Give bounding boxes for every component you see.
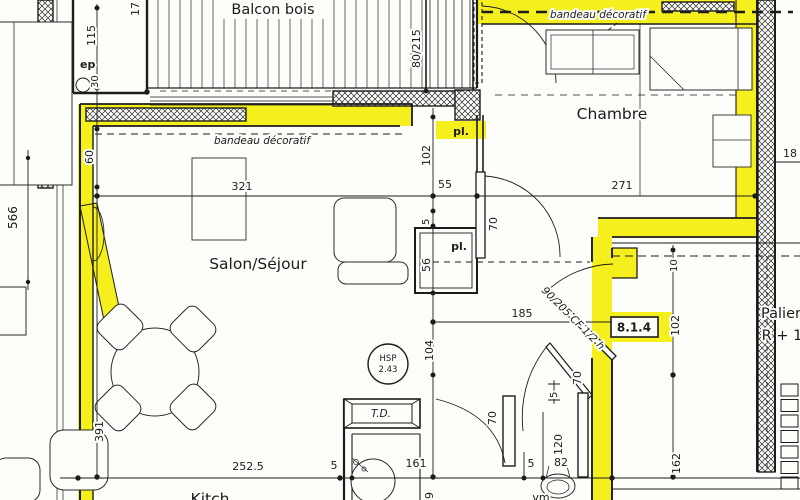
- dim-70-bath-door: 70: [486, 411, 499, 425]
- nightstand: [713, 115, 751, 167]
- dim-70-wc-door: 70: [571, 371, 584, 385]
- dim-18-partial: 18: [783, 147, 797, 160]
- north-wall-hatch: [86, 108, 246, 121]
- dim-115: 115: [85, 25, 98, 46]
- floor-plan: Balcon bois Chambre Salon/Séjour Palier …: [0, 0, 800, 500]
- dim-321: 321: [232, 180, 253, 193]
- balcony-label: Balcon bois: [231, 2, 314, 18]
- dim-17: 17: [129, 2, 142, 16]
- sofa-chaise: [338, 262, 408, 284]
- bath-door-leaf: [503, 396, 515, 466]
- bedroom-door-leaf: [476, 172, 485, 258]
- dim-271: 271: [612, 179, 633, 192]
- dim-56: 56: [420, 258, 433, 272]
- wardrobe: [546, 30, 639, 74]
- landing-label-line1: Palier: [761, 306, 800, 322]
- dim-55: 55: [438, 178, 452, 191]
- band-living-note: bandeau décoratif: [214, 135, 312, 147]
- top-right-hatch: [662, 2, 734, 11]
- wall-thickness-label: ep: [80, 58, 95, 71]
- washbasin: [351, 459, 395, 500]
- dim-161: 161: [406, 457, 427, 470]
- dim-120: 120: [552, 434, 565, 455]
- kitchen-label-partial: Kitch: [191, 490, 230, 500]
- living-table: [192, 158, 246, 240]
- dim-5-closet: 5: [421, 219, 432, 225]
- dim-60: 60: [83, 150, 96, 164]
- neighbor-chair-b: [0, 458, 40, 500]
- ceiling-height-line2: 2.43: [379, 365, 398, 375]
- wc-partition-stub: [578, 393, 588, 477]
- cable-box-label: T.D.: [371, 408, 391, 420]
- landing-stairs: [781, 384, 798, 489]
- dim-102-landing: 102: [669, 315, 682, 336]
- bedroom-south-wall-highlight: [598, 218, 756, 237]
- dim-566: 566: [6, 206, 20, 229]
- neighbor-bed: [0, 22, 72, 185]
- ref-code: 8.1.4: [617, 321, 651, 335]
- dim-5-b: 5: [528, 457, 535, 470]
- band-bedroom-note: bandeau décoratif: [550, 9, 648, 21]
- bedroom-label: Chambre: [577, 105, 648, 123]
- dim-185: 185: [512, 307, 533, 320]
- dim-10: 10: [669, 259, 680, 272]
- sofa-seat: [334, 198, 396, 262]
- closet-label-mid: pl.: [451, 240, 467, 253]
- dim-82: 82: [554, 456, 568, 469]
- ceiling-height-line1: HSP: [380, 354, 397, 364]
- bed: [650, 28, 752, 90]
- east-wall-hatch: [758, 0, 775, 472]
- dim-252-5: 252.5: [232, 460, 264, 473]
- window-spec: 80/215: [410, 29, 423, 68]
- dim-102-closet: 102: [420, 145, 433, 166]
- dim-5-a: 5: [331, 459, 338, 472]
- dim-5-c: 5: [549, 392, 560, 398]
- neighbor-cabinet: [0, 287, 26, 335]
- landing-label-line2: R + 1: [762, 328, 800, 344]
- living-room-label: Salon/Séjour: [209, 255, 307, 273]
- closet-label-top: pl.: [453, 125, 469, 138]
- dim-391: 391: [93, 421, 106, 442]
- vent-label-partial: vm: [532, 491, 549, 500]
- ceiling-height-symbol: [368, 344, 408, 384]
- dim-104: 104: [423, 340, 436, 361]
- dim-30: 30: [90, 75, 101, 88]
- dim-70-bedroom-door: 70: [487, 217, 500, 231]
- dim-9-partial: 9: [423, 492, 436, 499]
- dim-162: 162: [670, 453, 683, 474]
